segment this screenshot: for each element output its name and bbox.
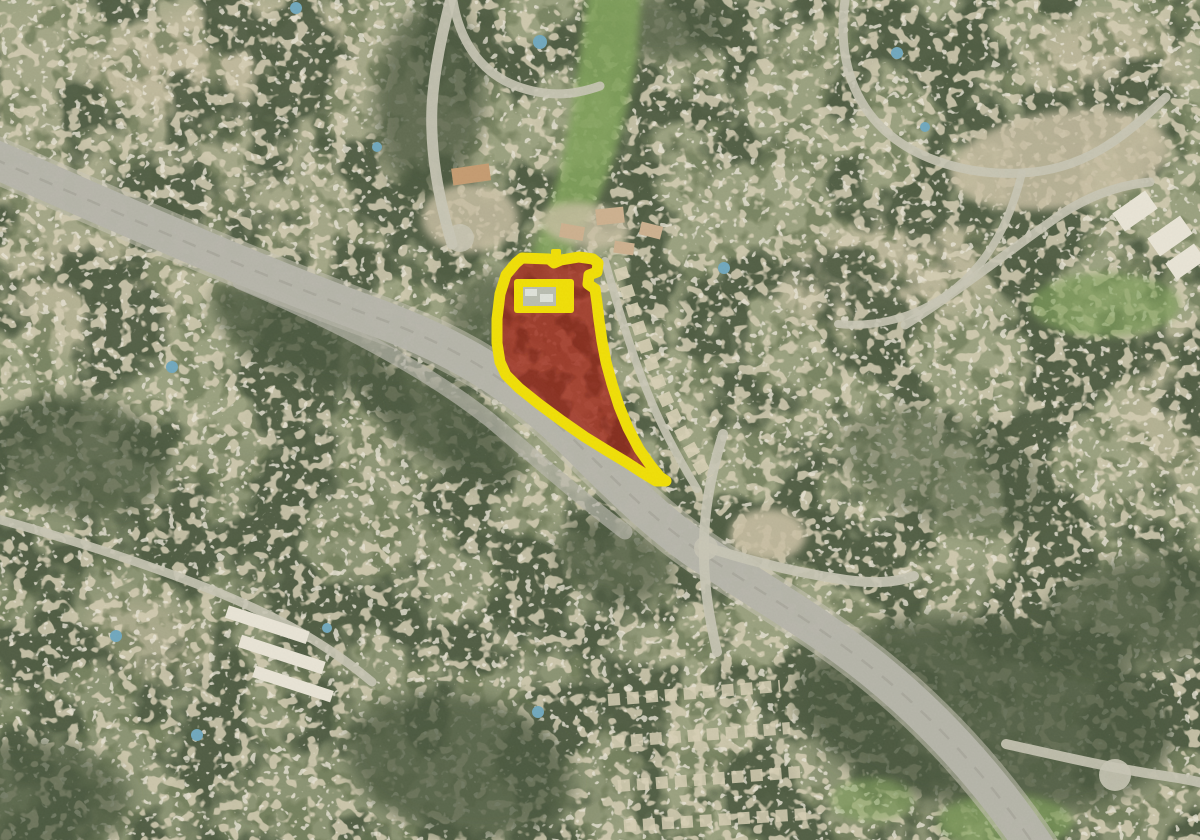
satellite-map	[0, 0, 1200, 840]
screenshot-root	[0, 0, 1200, 840]
film-grain-overlay	[0, 0, 1200, 840]
